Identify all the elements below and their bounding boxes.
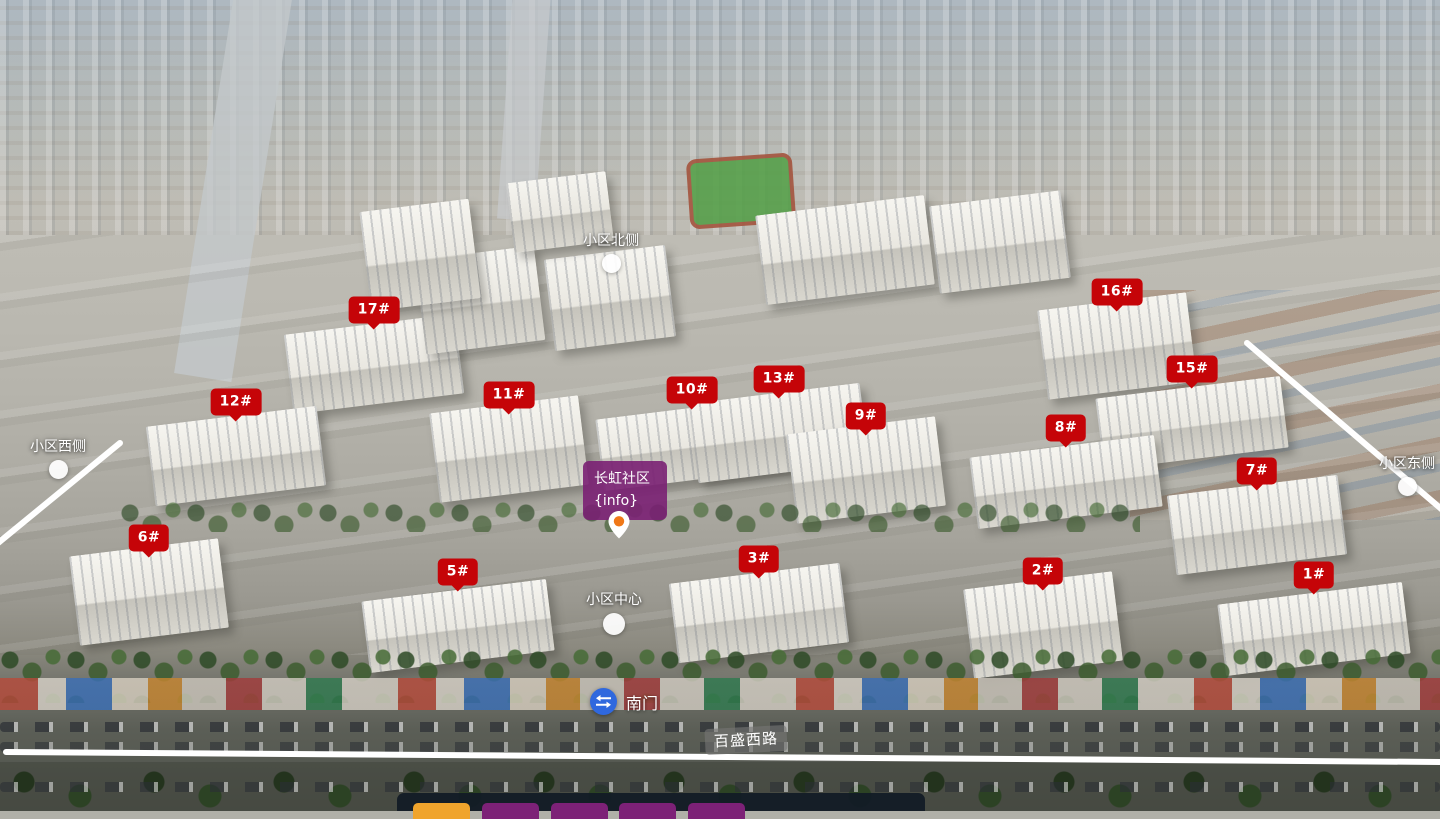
building-marker[interactable]: 3# — [739, 546, 779, 573]
gate-exchange-icon[interactable] — [590, 688, 617, 715]
community-title: 长虹社区 — [594, 469, 656, 491]
scene-thumbnail-scene-2-inactive[interactable] — [482, 803, 539, 819]
community-subtitle: {info} — [594, 491, 656, 513]
nav-hotspot-label[interactable]: 小区西侧 — [30, 436, 86, 456]
road-name-label: 百盛西路 — [704, 725, 787, 755]
location-pin-icon — [609, 511, 630, 543]
nav-hotspot-label[interactable]: 小区中心 — [586, 589, 642, 609]
nav-hotspot-circle[interactable] — [1398, 477, 1417, 496]
building-marker[interactable]: 7# — [1237, 458, 1277, 485]
scene-thumbnail-scene-5-inactive[interactable] — [688, 803, 745, 819]
building-marker[interactable]: 8# — [1046, 415, 1086, 442]
nav-hotspot-circle[interactable] — [49, 460, 68, 479]
nav-hotspot[interactable]: 小区北侧 — [583, 230, 639, 273]
nav-hotspot-circle[interactable] — [603, 613, 625, 635]
parked-cars-row — [0, 782, 1440, 792]
south-gate-hotspot[interactable]: 南门 — [590, 688, 658, 715]
nav-hotspot[interactable]: 小区东侧 — [1379, 453, 1435, 496]
nav-hotspot-circle[interactable] — [602, 254, 621, 273]
building-marker[interactable]: 1# — [1294, 562, 1334, 589]
building-marker[interactable]: 17# — [349, 297, 400, 324]
building-marker[interactable]: 2# — [1023, 558, 1063, 585]
nav-hotspot-label[interactable]: 小区北侧 — [583, 230, 639, 250]
building-marker[interactable]: 6# — [129, 525, 169, 552]
scene-thumbnail-scene-3-inactive[interactable] — [551, 803, 608, 819]
gate-label[interactable]: 南门 — [626, 690, 658, 714]
building-marker[interactable]: 16# — [1092, 279, 1143, 306]
building-marker[interactable]: 5# — [438, 559, 478, 586]
nav-hotspot-label[interactable]: 小区东侧 — [1379, 453, 1435, 473]
building-marker[interactable]: 13# — [754, 366, 805, 393]
apartment-building — [929, 190, 1071, 293]
apartment-building — [359, 199, 480, 312]
building-marker[interactable]: 10# — [667, 377, 718, 404]
building-marker[interactable]: 11# — [484, 382, 535, 409]
nav-hotspot[interactable]: 小区中心 — [586, 589, 642, 635]
building-marker[interactable]: 9# — [846, 403, 886, 430]
building-marker[interactable]: 12# — [211, 389, 262, 416]
nav-hotspot[interactable]: 小区西侧 — [30, 436, 86, 479]
shop-fronts-strip — [0, 678, 1440, 710]
scene-thumbnail-scene-4-inactive[interactable] — [619, 803, 676, 819]
scene-thumbnail-scene-1-active[interactable] — [413, 803, 470, 819]
building-marker[interactable]: 15# — [1167, 356, 1218, 383]
